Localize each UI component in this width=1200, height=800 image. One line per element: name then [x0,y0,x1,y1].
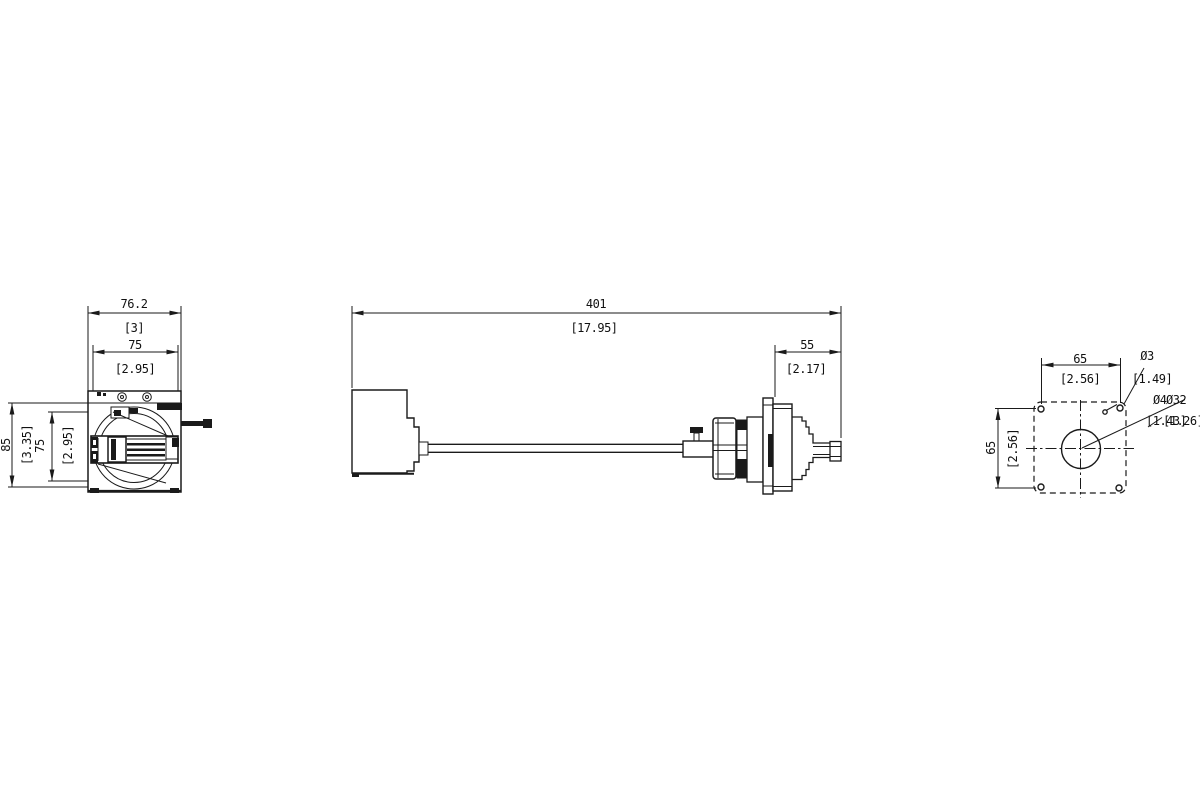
corner-hole [1038,484,1044,490]
handle-grip [91,436,179,463]
dim-center-hole-b-mm: Ø32 [1166,394,1186,406]
extension-shaft [428,444,683,452]
dim-center-hole-a-mm: Ø4 [1153,394,1166,406]
dim-side-length-in: [17.95] [570,322,617,334]
dim-corner-hole-in: [1.49] [1132,373,1172,385]
label-window [157,403,182,410]
dim-front-width-outer-in: [3] [124,322,144,334]
corner-hole [1038,406,1044,412]
dim-mount-pitch-v-in: [2.56] [1007,429,1019,469]
dim-mount-pitch-v-mm: 65 [985,441,997,454]
shaft-clamp [683,427,714,457]
dim-side-coupling-in: [2.17] [786,363,826,375]
clamp-screw [690,427,703,433]
corner-hole [1117,405,1123,411]
front-view [8,306,212,493]
dim-front-height-inner-in: [2.95] [62,426,74,466]
dim-front-height-inner-mm: 75 [34,439,46,452]
centerlines [1026,400,1134,498]
switch-body-side [352,390,428,477]
door-coupling [713,417,763,482]
dim-corner-hole-mm: Ø3 [1140,350,1153,362]
dim-front-height-outer-mm: 85 [0,438,12,451]
shaft-adapter [419,442,428,455]
dim-side-length-mm: 401 [586,298,606,310]
shaft-socket [830,442,841,462]
dim-side-coupling-mm: 55 [800,339,813,351]
dim-front-width-inner-in: [2.95] [115,363,155,375]
dim-mount-pitch-h-mm: 65 [1073,353,1086,365]
side-lever [181,421,205,426]
stepped-hub [792,417,841,480]
mounting-flange [763,398,792,494]
dim-mount-pitch-h-in: [2.56] [1060,373,1100,385]
drawing-linework [0,0,1200,800]
technical-drawing-page: 76.2 [3] 75 [2.95] 85 [3.35] 75 [2.95] 4… [0,0,1200,800]
corner-hole [1116,485,1122,491]
dim-front-width-outer-mm: 76.2 [121,298,148,310]
dim-center-hole-b-in: [1.26] [1163,415,1200,427]
dim-front-height-outer-in: [3.35] [21,425,33,465]
dim-front-width-inner-mm: 75 [128,339,141,351]
